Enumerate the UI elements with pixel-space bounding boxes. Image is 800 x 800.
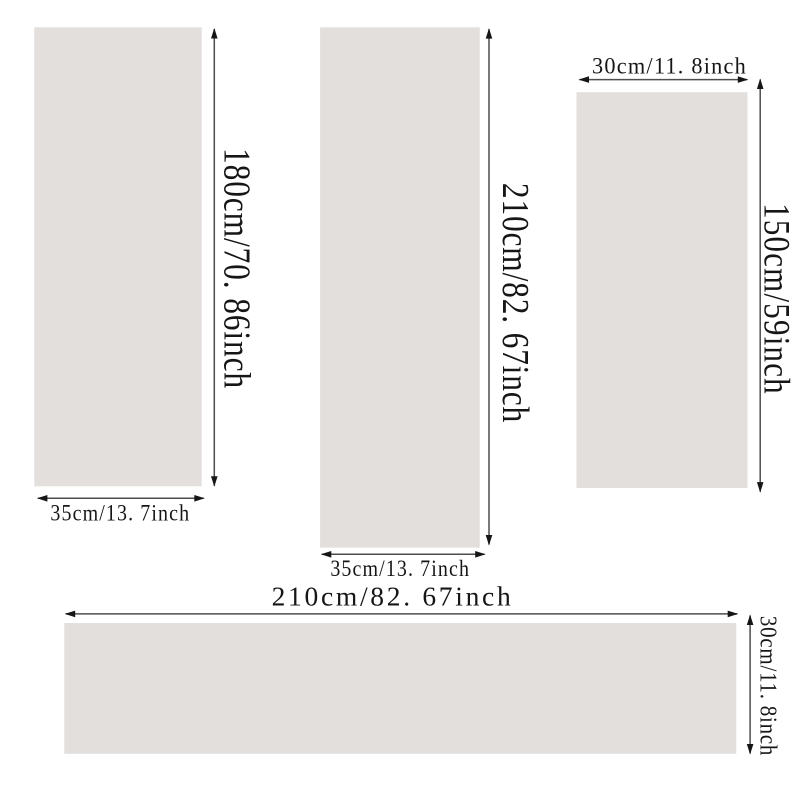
svg-text:30cm/11. 8inch: 30cm/11. 8inch bbox=[592, 53, 747, 79]
svg-text:30cm/11. 8inch: 30cm/11. 8inch bbox=[755, 616, 782, 756]
svg-text:150cm/59inch: 150cm/59inch bbox=[756, 203, 797, 395]
svg-text:210cm/82. 67inch: 210cm/82. 67inch bbox=[272, 580, 514, 611]
svg-text:35cm/13. 7inch: 35cm/13. 7inch bbox=[50, 500, 190, 526]
svg-text:210cm/82. 67inch: 210cm/82. 67inch bbox=[494, 183, 536, 423]
svg-text:35cm/13. 7inch: 35cm/13. 7inch bbox=[330, 556, 470, 582]
svg-text:180cm/70. 86inch: 180cm/70. 86inch bbox=[216, 148, 258, 389]
